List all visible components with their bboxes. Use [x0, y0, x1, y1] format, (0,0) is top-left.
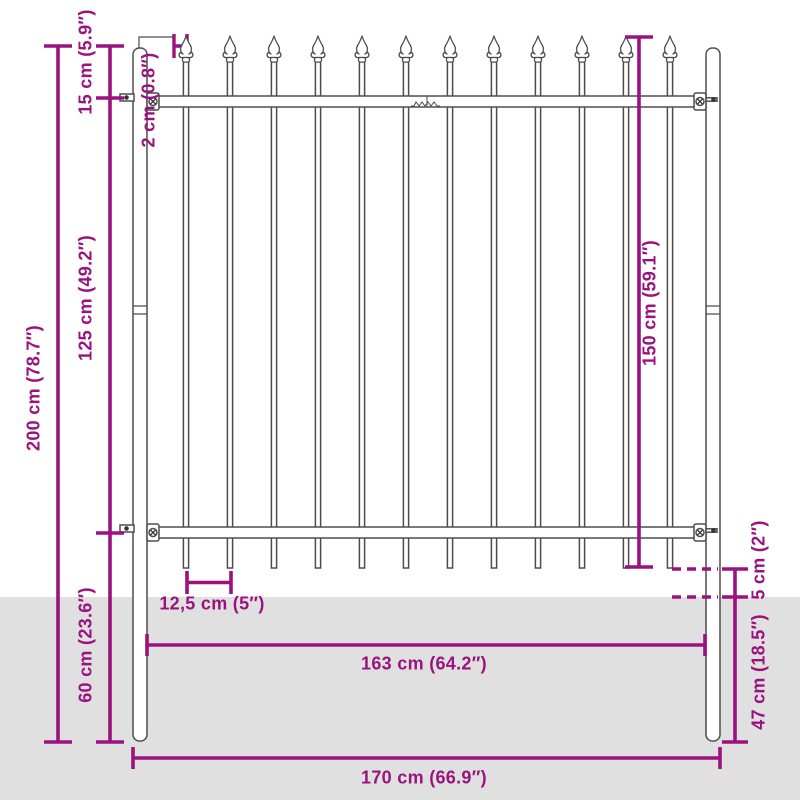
- picket-bar: [667, 60, 672, 568]
- spear-finial-icon: [575, 36, 589, 62]
- dim-label-post-depth: 47 cm (18.5″): [749, 614, 770, 730]
- spear-finial-icon: [443, 36, 457, 62]
- picket-bar: [183, 60, 188, 568]
- bottom-rail: [147, 527, 706, 538]
- diagram-stage: 200 cm (78.7″) 15 cm (5.9″) 2 cm (0.8″) …: [0, 0, 800, 800]
- dim-left-sections-line: [96, 46, 124, 742]
- spear-finial-icon: [179, 36, 193, 62]
- picket-bar: [359, 60, 364, 568]
- dim-picket-spacing-line: [187, 571, 231, 594]
- spear-finial-icon: [619, 36, 633, 62]
- dim-label-ground-gap: 5 cm (2″): [749, 520, 770, 599]
- dim-label-mid-section: 125 cm (49.2″): [76, 235, 97, 361]
- dim-label-panel-height: 150 cm (59.1″): [640, 240, 661, 366]
- picket-bar: [403, 60, 408, 568]
- spear-finial-icon: [311, 36, 325, 62]
- spear-finial-icon: [355, 36, 369, 62]
- left-post: [133, 48, 147, 741]
- picket-bar: [447, 60, 452, 568]
- picket-bar: [623, 60, 628, 568]
- spear-finial-icon: [531, 36, 545, 62]
- dim-label-inner-width: 163 cm (64.2″): [361, 654, 487, 675]
- spear-finial-icon: [663, 36, 677, 62]
- picket-bar: [535, 60, 540, 568]
- spear-finial-icon: [223, 36, 237, 62]
- dim-outer-width-line: [133, 747, 720, 769]
- fence-drawing: [0, 0, 800, 800]
- dim-label-total-height: 200 cm (78.7″): [24, 325, 45, 451]
- picket-bar: [579, 60, 584, 568]
- spear-finial-icon: [399, 36, 413, 62]
- fence: [120, 36, 720, 741]
- dim-label-bar-width: 2 cm (0.8″): [139, 53, 160, 148]
- dim-label-outer-width: 170 cm (66.9″): [361, 768, 487, 789]
- picket-bar: [315, 60, 320, 568]
- right-post: [706, 48, 720, 741]
- picket-bar: [227, 60, 232, 568]
- picket-bar: [491, 60, 496, 568]
- picket-bar: [271, 60, 276, 568]
- dim-label-picket-spacing: 12,5 cm (5″): [159, 594, 264, 615]
- pickets: [179, 36, 677, 568]
- spear-finial-icon: [267, 36, 281, 62]
- dim-total-height-line: [44, 46, 72, 742]
- dim-label-bottom-section: 60 cm (23.6″): [76, 587, 97, 703]
- spear-finial-icon: [487, 36, 501, 62]
- dim-right-sections-line: [722, 569, 748, 742]
- dim-label-top-section: 15 cm (5.9″): [76, 9, 97, 114]
